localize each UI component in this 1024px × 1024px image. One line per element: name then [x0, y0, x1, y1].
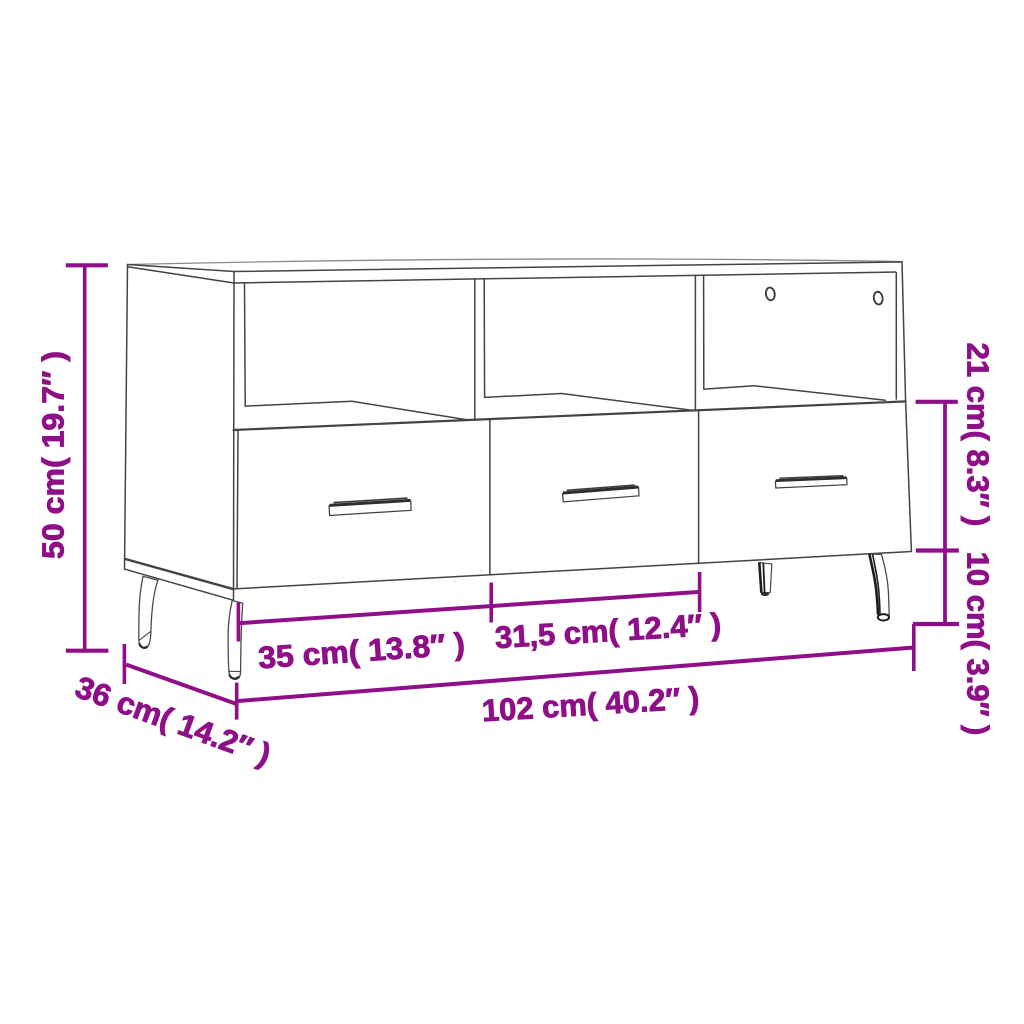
svg-text:50 cm( 19.7″ ): 50 cm( 19.7″ ) [36, 351, 71, 559]
svg-text:21 cm( 8.3″ ): 21 cm( 8.3″ ) [961, 343, 996, 527]
svg-text:10 cm( 3.9″ ): 10 cm( 3.9″ ) [961, 552, 996, 736]
